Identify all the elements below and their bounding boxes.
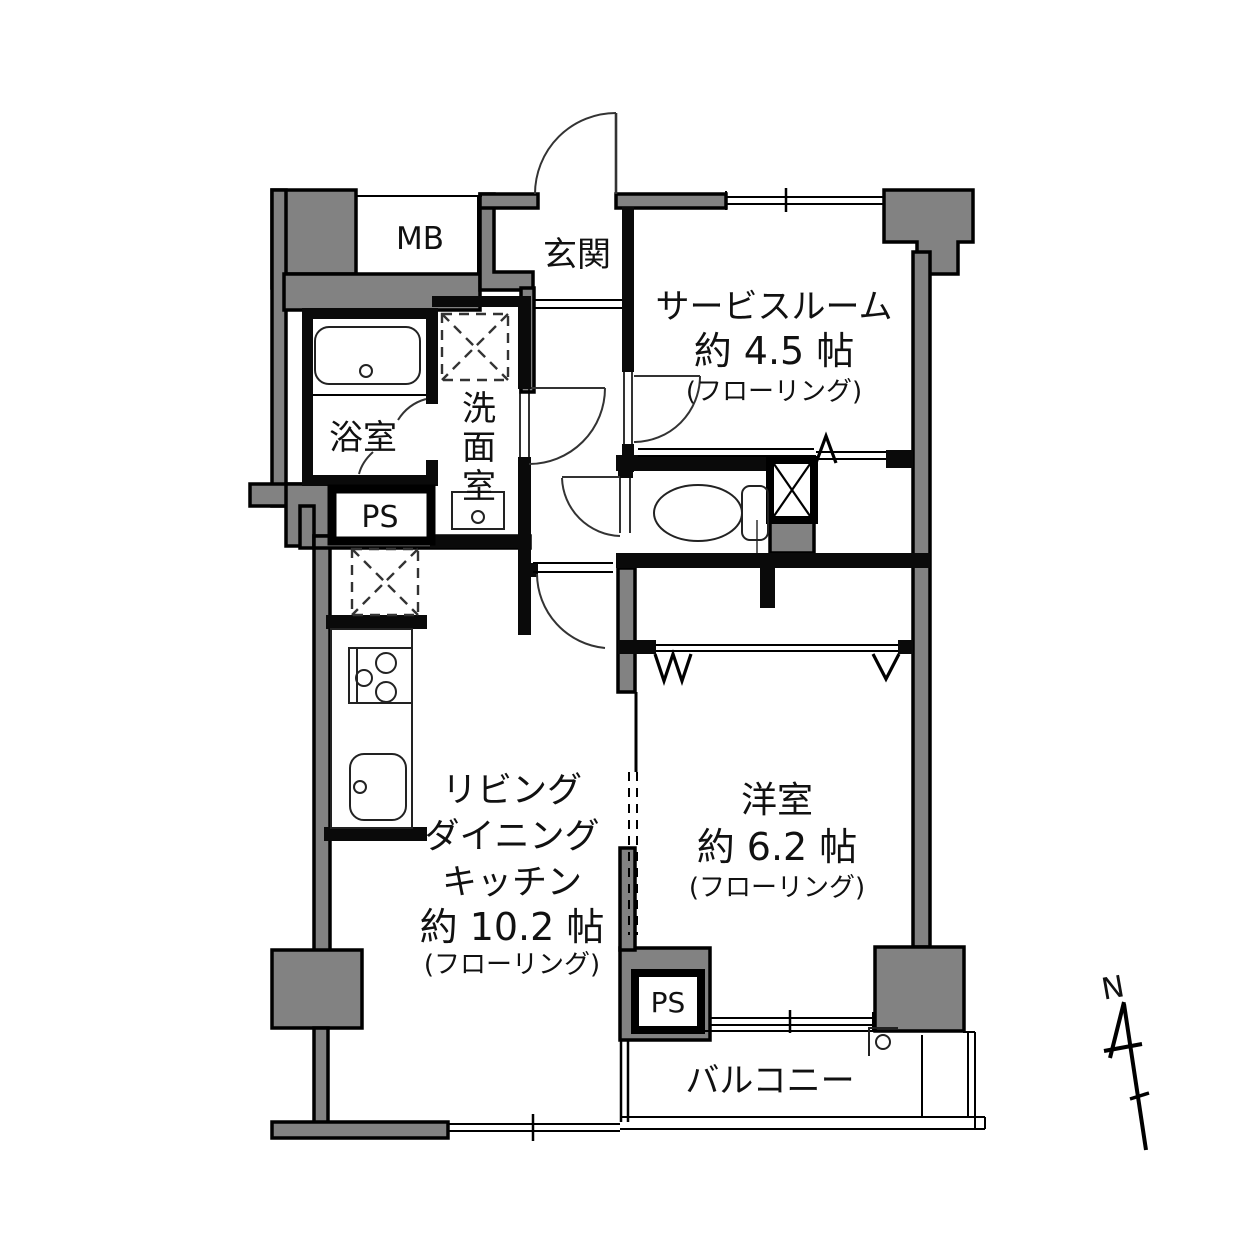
wall-left-stem-lower	[314, 1028, 328, 1124]
washbasin-drain-icon	[472, 511, 484, 523]
label-mb: MB	[396, 221, 444, 257]
serviceroom-right-window	[816, 452, 886, 459]
ldk-doorway-lines	[533, 563, 613, 572]
washroom-doorway-frame	[520, 389, 529, 457]
room-labels: MB 玄関 サービスルーム 約 4.5 帖 (フローリング) 浴室 洗 面 室 …	[329, 221, 892, 1101]
fridge-space-icon	[352, 549, 418, 615]
washer-space-x	[442, 314, 508, 380]
bathroom-wall-right-lower	[426, 460, 438, 486]
bathtub-drain-icon	[360, 365, 372, 377]
bathroom-wall-bottom	[302, 475, 438, 486]
wall-top-doorright	[616, 194, 726, 208]
label-ps-upper: PS	[361, 500, 398, 535]
label-ldk-size: 約 10.2 帖	[420, 905, 605, 949]
label-ldk-line1: リビング	[442, 771, 582, 811]
wall-divider-lower	[620, 848, 635, 950]
window-top	[726, 191, 884, 210]
hall-wall-upper	[518, 296, 531, 389]
balcony-drain-icon	[876, 1035, 890, 1049]
compass-arrowhead	[1104, 1002, 1142, 1058]
wall-bottomleft-pillar	[272, 950, 362, 1028]
label-balcony: バルコニー	[685, 1061, 854, 1101]
north-compass-icon	[1104, 1002, 1149, 1150]
entrance-door-arc	[535, 113, 616, 194]
balcony-rail-right	[963, 1032, 975, 1129]
western-window	[700, 1012, 875, 1031]
label-ldk-floor: (フローリング)	[424, 950, 600, 980]
balcony-left-partition	[621, 1040, 628, 1122]
washroom-wall-bottom	[430, 535, 531, 548]
serviceroom-doorway-frame	[624, 372, 632, 444]
label-bathroom: 浴室	[329, 418, 397, 458]
serviceroom-wall-left-upper	[622, 207, 634, 372]
toilet-doorway-frame	[620, 478, 630, 533]
label-ldk-line2: ダイニング	[424, 817, 599, 857]
kitchen-sink-icon	[350, 754, 406, 820]
compass-shaft	[1124, 1004, 1146, 1150]
fridge-space-x	[352, 549, 418, 615]
wall-left-step	[300, 506, 314, 548]
label-genkan: 玄関	[543, 235, 611, 275]
closet-track	[656, 645, 898, 651]
label-serviceroom-floor: (フローリング)	[686, 377, 862, 407]
exterior-walls	[250, 190, 973, 1138]
serviceroom-wall-bottom-right	[886, 450, 913, 468]
stove-burner-1	[376, 653, 396, 673]
serviceroom-closet-track	[638, 449, 814, 456]
wall-divider-upper	[618, 568, 635, 692]
label-serviceroom-size: 約 4.5 帖	[694, 329, 855, 373]
label-ldk-line3: キッチン	[442, 863, 582, 903]
bathroom-wall-left	[302, 308, 313, 486]
closet-wall-top	[616, 553, 930, 568]
wall-bottomright-pillar	[875, 947, 964, 1031]
label-washroom-char3: 室	[462, 467, 496, 507]
kitchen-stub-top	[326, 615, 427, 629]
kitchen-faucet-icon	[354, 781, 366, 793]
toilet-tank-icon	[742, 486, 768, 540]
bathtub-icon	[315, 327, 420, 384]
swing-mark-v-icon	[873, 654, 899, 679]
floor-plan: N MB 玄関 サービスルーム 約 4.5 帖 (フローリング) 浴室 洗 面 …	[0, 0, 1252, 1252]
stove-icon	[349, 648, 412, 703]
toilet-door-arc	[562, 478, 620, 536]
bath-fold-door-arc1	[398, 399, 426, 420]
closet-divider-stub	[760, 568, 775, 608]
toilet-wall-left-stub	[618, 457, 633, 478]
closet-cap-right	[898, 640, 913, 654]
ldk-door-arc	[537, 574, 605, 648]
wall-left-upper	[272, 190, 286, 506]
kitchen-stub-bottom	[324, 827, 427, 841]
stove-burner-3	[376, 682, 396, 702]
wall-right	[913, 252, 930, 947]
washer-space-icon	[442, 314, 508, 380]
fixtures	[315, 327, 898, 1056]
bathroom-wall-right-upper	[426, 308, 438, 404]
wall-kitchen-left	[314, 536, 330, 952]
label-western-floor: (フローリング)	[689, 873, 865, 903]
washroom-door-arc	[529, 388, 605, 464]
label-western-name: 洋室	[741, 780, 813, 821]
label-western-size: 約 6.2 帖	[697, 825, 858, 869]
label-serviceroom-name: サービスルーム	[656, 287, 893, 327]
bathroom-wall-top	[302, 308, 438, 319]
wall-top-doorleft	[480, 194, 538, 208]
label-ps-lower: PS	[651, 986, 686, 1019]
genkan-step-line	[533, 300, 622, 308]
toilet-bowl-icon	[654, 485, 742, 541]
swing-mark-w-icon	[655, 654, 691, 681]
closet-cap-left	[618, 640, 656, 654]
balcony-rail	[620, 1117, 985, 1129]
label-washroom-char2: 面	[462, 428, 496, 468]
compass-n-label: N	[1099, 969, 1127, 1007]
label-washroom-char1: 洗	[462, 389, 496, 429]
stove-burner-2	[356, 670, 372, 686]
kitchen-counter-icon	[331, 629, 412, 828]
wall-bottom	[272, 1122, 448, 1138]
washroom-wall-top	[432, 296, 530, 307]
